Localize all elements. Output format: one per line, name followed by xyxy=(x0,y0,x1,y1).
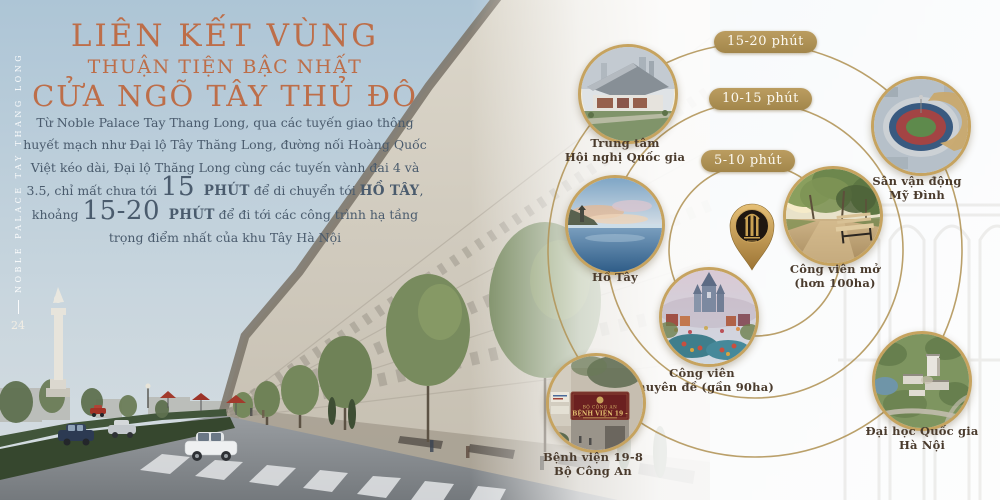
location-label-hospital-19-8: Bệnh viện 19-8Bộ Công An xyxy=(513,450,673,479)
time-badge-15-20: 15-20 phút xyxy=(714,31,817,53)
time-badge-10-15: 10-15 phút xyxy=(709,88,812,110)
hospital-sign-line2: BỆNH VIỆN 19 - xyxy=(572,410,628,418)
location-bubble-hospital-19-8: BỘ CÔNG AN BỆNH VIỆN 19 - xyxy=(546,353,646,453)
time-badge-5-10: 5-10 phút xyxy=(701,150,795,172)
noble-palace-emblem xyxy=(744,215,760,242)
location-bubble-open-park xyxy=(783,166,883,266)
intro-paragraph: Từ Noble Palace Tay Thang Long, qua các … xyxy=(22,112,428,249)
title-line-3: CỬA NGÕ TÂY THỦ ĐÔ xyxy=(20,80,430,113)
page-number: 24 xyxy=(8,319,28,332)
title-line-1: LIÊN KẾT VÙNG xyxy=(20,20,430,53)
location-bubble-ho-tay xyxy=(565,175,665,275)
location-bubble-theme-park xyxy=(659,267,759,367)
location-label-national-university: Đại học Quốc giaHà Nội xyxy=(842,424,1000,453)
section-header: LIÊN KẾT VÙNG THUẬN TIỆN BẬC NHẤT CỬA NG… xyxy=(20,20,430,114)
hospital-sign-line1: BỘ CÔNG AN xyxy=(583,405,618,410)
location-bubble-convention-center xyxy=(578,44,678,144)
location-bubble-national-university xyxy=(872,331,972,431)
location-bubble-my-dinh-stadium xyxy=(871,76,971,176)
location-label-theme-park: Công viênchuyên đề (gần 90ha) xyxy=(622,366,782,395)
brochure-page: 15-20 phút 10-15 phút 5-10 phút xyxy=(0,0,1000,500)
title-line-2: THUẬN TIỆN BẬC NHẤT xyxy=(20,56,430,80)
margin-tick xyxy=(18,300,19,314)
location-label-ho-tay: Hồ Tây xyxy=(535,270,695,284)
project-location-pin xyxy=(724,198,780,272)
location-label-convention-center: Trung tâmHội nghị Quốc gia xyxy=(545,136,705,165)
